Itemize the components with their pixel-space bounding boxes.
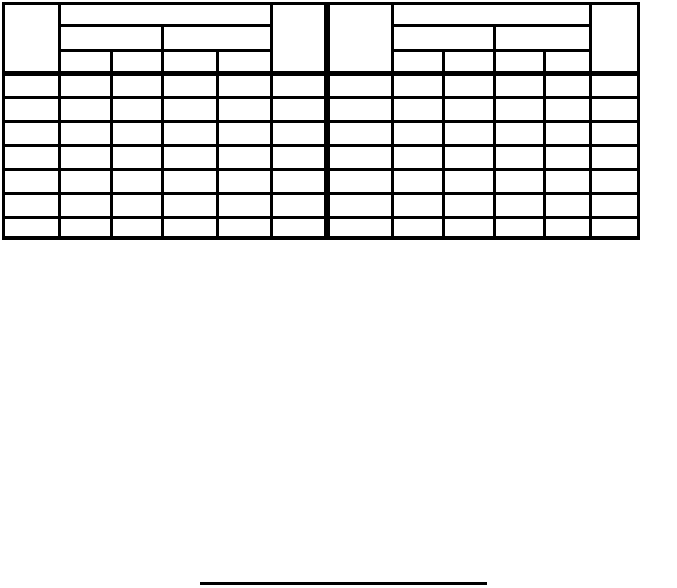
- header-group-cell: [60, 4, 272, 26]
- header-group-cell: [393, 4, 591, 26]
- table-cell: [591, 170, 639, 194]
- table-cell: [4, 98, 60, 122]
- header-row-1: [329, 4, 639, 26]
- table-cell: [444, 122, 495, 146]
- table-cell: [495, 122, 545, 146]
- table-cell: [163, 218, 218, 238]
- table-cell: [495, 74, 545, 98]
- table-cell: [591, 98, 639, 122]
- table-cell: [591, 122, 639, 146]
- table-cell: [218, 218, 272, 238]
- table-cell: [329, 98, 393, 122]
- header-leaf-cell: [444, 51, 495, 74]
- table-cell: [495, 98, 545, 122]
- table-row: [4, 218, 326, 238]
- table-cell: [545, 218, 591, 238]
- table-cell: [218, 98, 272, 122]
- table-cell: [329, 122, 393, 146]
- header-end-cell: [591, 4, 639, 74]
- table-row: [329, 98, 639, 122]
- table-right-panel: [327, 2, 640, 240]
- table-left-body: [4, 74, 326, 238]
- table-row: [4, 98, 326, 122]
- table-cell: [4, 218, 60, 238]
- table-cell: [163, 146, 218, 170]
- table-row: [4, 146, 326, 170]
- table-cell: [393, 122, 444, 146]
- table-cell: [495, 218, 545, 238]
- footnote-rule: [200, 582, 487, 585]
- table-cell: [4, 74, 60, 98]
- table-cell: [272, 74, 326, 98]
- table-right-header: [329, 4, 639, 74]
- table-cell: [112, 218, 163, 238]
- header-subgroup-cell: [163, 26, 272, 51]
- table-cell: [60, 122, 112, 146]
- table-cell: [112, 122, 163, 146]
- table-row: [4, 170, 326, 194]
- table-cell: [272, 122, 326, 146]
- header-leaf-cell: [163, 51, 218, 74]
- table-cell: [545, 146, 591, 170]
- table-left-panel: [2, 2, 327, 240]
- table-row: [329, 170, 639, 194]
- table-cell: [545, 122, 591, 146]
- table-cell: [393, 194, 444, 218]
- table-cell: [444, 218, 495, 238]
- table-cell: [329, 218, 393, 238]
- table-cell: [545, 98, 591, 122]
- table-cell: [60, 218, 112, 238]
- header-leaf-cell: [218, 51, 272, 74]
- table-cell: [272, 170, 326, 194]
- table-cell: [112, 74, 163, 98]
- header-subgroup-cell: [60, 26, 163, 51]
- table-cell: [591, 218, 639, 238]
- table-cell: [163, 122, 218, 146]
- table-row: [329, 194, 639, 218]
- header-leaf-cell: [393, 51, 444, 74]
- table-cell: [112, 194, 163, 218]
- table-cell: [444, 146, 495, 170]
- table-cell: [60, 146, 112, 170]
- table-cell: [393, 98, 444, 122]
- header-end-cell: [272, 4, 326, 74]
- table-cell: [393, 218, 444, 238]
- table-cell: [591, 146, 639, 170]
- header-row-1: [4, 4, 326, 26]
- table-left-header: [4, 4, 326, 74]
- table-cell: [60, 170, 112, 194]
- table-cell: [218, 122, 272, 146]
- table-cell: [163, 194, 218, 218]
- header-leaf-cell: [112, 51, 163, 74]
- document-page: [0, 0, 677, 588]
- table-cell: [218, 146, 272, 170]
- table-cell: [60, 74, 112, 98]
- table-cell: [545, 170, 591, 194]
- header-corner-cell: [4, 4, 60, 74]
- header-subgroup-cell: [393, 26, 495, 51]
- table-cell: [393, 170, 444, 194]
- table-cell: [545, 194, 591, 218]
- table-cell: [4, 146, 60, 170]
- table-cell: [591, 74, 639, 98]
- table-cell: [4, 170, 60, 194]
- table-cell: [112, 170, 163, 194]
- header-leaf-cell: [60, 51, 112, 74]
- table-cell: [272, 218, 326, 238]
- header-corner-cell: [329, 4, 393, 74]
- table-cell: [329, 74, 393, 98]
- table-cell: [4, 194, 60, 218]
- table-row: [329, 218, 639, 238]
- table-cell: [163, 98, 218, 122]
- table-cell: [444, 194, 495, 218]
- table-cell: [444, 74, 495, 98]
- table-cell: [444, 170, 495, 194]
- header-leaf-cell: [495, 51, 545, 74]
- table-row: [4, 194, 326, 218]
- table-cell: [218, 194, 272, 218]
- table-cell: [163, 74, 218, 98]
- table-cell: [60, 98, 112, 122]
- table-cell: [272, 194, 326, 218]
- table-cell: [112, 98, 163, 122]
- table-cell: [218, 74, 272, 98]
- table-cell: [495, 194, 545, 218]
- table-cell: [329, 170, 393, 194]
- table-cell: [112, 146, 163, 170]
- table-cell: [4, 122, 60, 146]
- table-row: [4, 122, 326, 146]
- table-cell: [272, 98, 326, 122]
- table-cell: [393, 74, 444, 98]
- header-leaf-cell: [545, 51, 591, 74]
- header-subgroup-cell: [495, 26, 591, 51]
- table-cell: [218, 170, 272, 194]
- table-cell: [545, 74, 591, 98]
- table-cell: [329, 146, 393, 170]
- table-cell: [272, 146, 326, 170]
- table-cell: [60, 194, 112, 218]
- table-right-body: [329, 74, 639, 238]
- table-cell: [591, 194, 639, 218]
- table-cell: [163, 170, 218, 194]
- table-cell: [393, 146, 444, 170]
- table-row: [4, 74, 326, 98]
- table-row: [329, 146, 639, 170]
- table-row: [329, 74, 639, 98]
- table-cell: [444, 98, 495, 122]
- data-table: [2, 2, 640, 240]
- table-cell: [495, 146, 545, 170]
- table-cell: [329, 194, 393, 218]
- table-row: [329, 122, 639, 146]
- table-cell: [495, 170, 545, 194]
